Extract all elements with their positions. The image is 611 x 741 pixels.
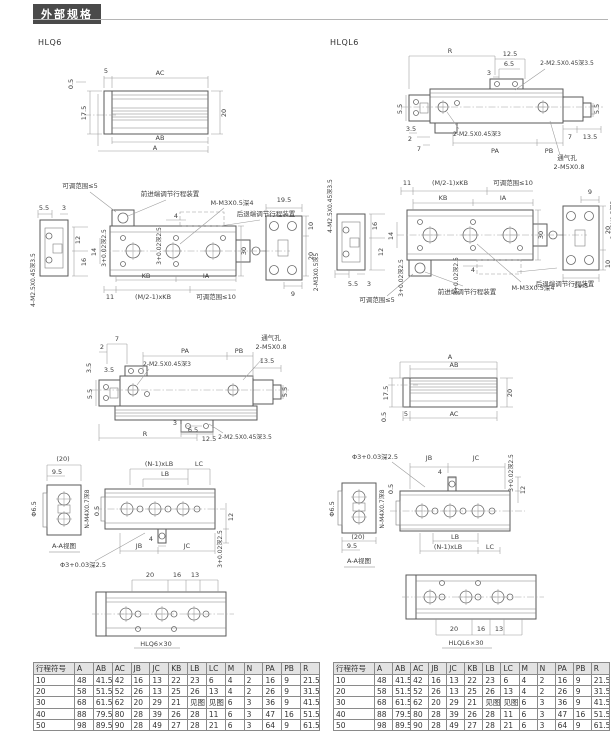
table-cell: 41.5 <box>393 675 411 686</box>
dim-5_5: 5.5 <box>39 204 49 212</box>
dim-6_5: 6.5 <box>504 60 514 68</box>
table-cell: 41.5 <box>93 675 112 686</box>
table-cell: 42 <box>112 675 131 686</box>
dim-ac: AC <box>450 410 459 418</box>
table-cell: 23 <box>483 675 501 686</box>
hlq6-detail-view: 20 16 13 HLQ6×30 <box>88 568 238 656</box>
table-cell: 3 <box>537 709 555 720</box>
table-cell: 16 <box>282 709 301 720</box>
column-header: AB <box>393 663 411 675</box>
table-cell: 21 <box>465 697 483 709</box>
model-label-hlql6: HLQL6 <box>330 38 359 47</box>
table-cell: 20 <box>34 686 75 697</box>
table-cell: 3 <box>537 720 555 731</box>
table-cell: 21 <box>501 720 519 731</box>
table-cell: 79.5 <box>393 709 411 720</box>
table-cell: 9 <box>282 686 301 697</box>
dim-12: 12 <box>227 513 235 521</box>
table-cell: 89.5 <box>93 720 112 731</box>
table-cell: 26 <box>465 709 483 720</box>
dim-3: 3 <box>62 204 66 212</box>
table-cell: 13 <box>447 675 465 686</box>
label-2-m5: 2-M5X0.8 <box>553 163 584 171</box>
dim-12: 12 <box>519 486 527 494</box>
table-cell: 61.5 <box>393 697 411 709</box>
table-cell: 80 <box>112 709 131 720</box>
column-header: M <box>225 663 244 675</box>
table-cell: 58 <box>375 686 393 697</box>
table-cell: 28 <box>483 720 501 731</box>
label-screw-4-m2_5: 4-M2.5X0.45深3.5 <box>29 253 37 307</box>
column-header: PA <box>555 663 573 675</box>
header-row: 行程符号AABACJBJCKBLBLCMNPAPBR <box>334 663 610 675</box>
hlq6-dimension-table: 行程符号AABACJBJCKBLBLCMNPAPBR104841.5421613… <box>33 662 320 731</box>
hlq6-side-view: AC 5 0.5 17.5 20 AB A <box>40 58 240 160</box>
dim-0_5: 0.5 <box>387 484 395 494</box>
column-header: N <box>537 663 555 675</box>
dim-dia-3: Φ3+0.03深2.5 <box>352 452 398 461</box>
dim-5: 5 <box>104 67 108 75</box>
dim-17_5: 17.5 <box>80 106 88 120</box>
header-divider <box>33 19 608 20</box>
table-cell: 16 <box>573 709 591 720</box>
dim-n-1xlb: (N-1)xLB <box>145 460 173 468</box>
table-cell: 26 <box>131 686 150 697</box>
dim-n-1xlb: (N-1)xLB <box>434 543 462 551</box>
table-cell: 20 <box>334 686 375 697</box>
table-row: 306861.562202921见图见图6336941.5 <box>34 697 320 709</box>
table-cell: 98 <box>375 720 393 731</box>
table-cell: 2 <box>244 686 263 697</box>
dim-jb: JB <box>425 454 432 462</box>
dim-16: 16 <box>80 258 88 266</box>
dim-10: 10 <box>604 260 611 268</box>
dim-2: 2 <box>408 135 412 143</box>
table-cell: 41.5 <box>301 697 320 709</box>
dim-pa: PA <box>491 147 500 155</box>
table-cell: 58 <box>75 686 94 697</box>
table-cell: 3 <box>537 697 555 709</box>
dim-13: 13 <box>191 571 199 579</box>
dim-3: 3 <box>487 69 491 77</box>
table-cell: 68 <box>375 697 393 709</box>
dim-3: 3 <box>367 280 371 288</box>
table-cell: 88 <box>75 709 94 720</box>
table-cell: 26 <box>188 686 207 697</box>
table-cell: 21 <box>206 720 225 731</box>
dim-0_5: 0.5 <box>93 506 101 516</box>
label-n-m4: N-M4X0.7深8 <box>83 489 91 528</box>
hlq6-front-view: 7 2 PA PB 通气孔 2-M5X0.8 2-M2.5X0.45深3 13.… <box>85 328 290 446</box>
hlq6-detail-view-art <box>92 580 234 648</box>
dim-4: 4 <box>174 212 178 220</box>
dim-5_5-left: 5.5 <box>396 104 404 114</box>
table-cell: 9 <box>573 720 591 731</box>
table-cell: 51.5 <box>591 709 609 720</box>
table-cell: 2 <box>537 675 555 686</box>
column-header: LC <box>206 663 225 675</box>
column-header: JC <box>447 663 465 675</box>
table-cell: 31.5 <box>301 686 320 697</box>
table-cell: 28 <box>429 709 447 720</box>
table-cell: 11 <box>501 709 519 720</box>
dim-ab: AB <box>450 361 459 369</box>
page-title: 外部规格 <box>33 4 101 24</box>
table-cell: 39 <box>150 709 169 720</box>
table-cell: 27 <box>169 720 188 731</box>
table-cell: 3 <box>244 720 263 731</box>
dim-9_5: 9.5 <box>347 542 357 550</box>
dim-tolerance: 3+0.02深2.5 <box>216 530 224 568</box>
column-header: AB <box>93 663 112 675</box>
table-cell: 13 <box>501 686 519 697</box>
label-adjust-range-10: 可调范围≤10 <box>196 292 236 301</box>
table-cell: 6 <box>501 675 519 686</box>
table-cell: 61.5 <box>301 720 320 731</box>
table-cell: 62 <box>112 697 131 709</box>
dim-3_5-b: 3.5 <box>104 366 114 374</box>
table-cell: 16 <box>263 675 282 686</box>
table-cell: 9 <box>282 697 301 709</box>
column-header: A <box>75 663 94 675</box>
table-cell: 6 <box>519 709 537 720</box>
hlql6-side-view: A AB 17.5 20 0.5 5 AC <box>370 345 610 449</box>
label-adjust-range-10: 可调范围≤10 <box>493 178 533 187</box>
dim-3_5: 3.5 <box>406 125 416 133</box>
dim-20: 20 <box>220 109 228 117</box>
dim-jb: JB <box>135 542 142 550</box>
table-cell: 41.5 <box>591 697 609 709</box>
table-cell: 62 <box>411 697 429 709</box>
column-header: KB <box>169 663 188 675</box>
hlq6-side-view-art <box>76 76 223 153</box>
dim-m2-1xkb: (M/2-1)xKB <box>432 179 468 187</box>
table-cell: 6 <box>519 720 537 731</box>
table-cell: 42 <box>411 675 429 686</box>
table-cell: 50 <box>34 720 75 731</box>
table-row: 306861.562202921见图见图6336941.5 <box>334 697 610 709</box>
dim-14: 14 <box>90 248 98 256</box>
table-cell: 64 <box>263 720 282 731</box>
dim-kb: KB <box>142 272 151 280</box>
table-cell: 90 <box>411 720 429 731</box>
dim-ia: IA <box>500 194 507 202</box>
dim-16: 16 <box>371 222 379 230</box>
table-cell: 64 <box>555 720 573 731</box>
table-cell: 40 <box>34 709 75 720</box>
dim-12: 12 <box>74 236 82 244</box>
dim-pb: PB <box>235 347 243 355</box>
table-cell: 28 <box>188 709 207 720</box>
column-header: AC <box>411 663 429 675</box>
dim-a: A <box>448 353 453 361</box>
table-cell: 9 <box>573 675 591 686</box>
table-cell: 27 <box>465 720 483 731</box>
table-cell: 61.5 <box>93 697 112 709</box>
table-row: 205851.55226132526134226931.5 <box>34 686 320 697</box>
table-row: 205851.55226132526134226931.5 <box>334 686 610 697</box>
hlq6-bottom-view: (20) 9.5 Φ6.5 N-M4X0.7深8 A-A视图 0.5 (N-1)… <box>25 447 260 576</box>
column-header: PB <box>282 663 301 675</box>
table-row: 408879.580283926281163471651.5 <box>334 709 610 720</box>
table-cell: 49 <box>150 720 169 731</box>
dim-m2-1xkb: (M/2-1)xKB <box>135 293 171 301</box>
table-cell: 10 <box>334 675 375 686</box>
dim-5_5-right: 5.5 <box>281 387 289 397</box>
dim-20-paren: (20) <box>351 533 364 541</box>
label-aa-view: A-A视图 <box>52 541 76 550</box>
table-cell: 31.5 <box>591 686 609 697</box>
dim-11: 11 <box>403 179 411 187</box>
label-screw-4-m2_5: 4-M2.5X0.45深3.5 <box>326 179 334 233</box>
dim-ac: AC <box>156 69 165 77</box>
table-cell: 36 <box>555 697 573 709</box>
table-cell: 26 <box>169 709 188 720</box>
table-cell: 30 <box>334 697 375 709</box>
label-aa-view: A-A视图 <box>347 556 371 565</box>
table-cell: 9 <box>282 675 301 686</box>
hlql6-front-view: R 12.5 6.5 3 2-M2.5X0.45深3.5 5.5 3.5 2 7… <box>395 45 607 177</box>
table-cell: 61.5 <box>591 720 609 731</box>
label-2-m2_5-deep3_5: 2-M2.5X0.45深3.5 <box>540 59 594 67</box>
column-header: LB <box>188 663 207 675</box>
table-cell: 90 <box>112 720 131 731</box>
dim-lb: LB <box>161 470 169 478</box>
table-cell: 25 <box>169 686 188 697</box>
table-cell: 30 <box>34 697 75 709</box>
table-cell: 3 <box>244 697 263 709</box>
table-cell: 40 <box>334 709 375 720</box>
column-header: A <box>375 663 393 675</box>
table-cell: 见图 <box>206 697 225 709</box>
label-n-m4: N-M4X0.7深8 <box>378 489 386 528</box>
dim-tolerance-b: 3+0.02深2.5 <box>155 227 163 265</box>
dim-r: R <box>143 430 148 438</box>
dim-r: R <box>448 47 453 55</box>
table-cell: 6 <box>225 720 244 731</box>
label-adjust-range-5: 可调范围≤5 <box>62 181 98 190</box>
table-cell: 26 <box>483 686 501 697</box>
table-cell: 48 <box>375 675 393 686</box>
dim-3_5-a: 3.5 <box>85 363 93 373</box>
table-cell: 20 <box>131 697 150 709</box>
table-cell: 13 <box>150 686 169 697</box>
hlql6-front-view-art <box>401 56 603 155</box>
label-screw-2-m3: 2-M3X0.5深5 <box>312 253 320 292</box>
column-header: 行程符号 <box>34 663 75 675</box>
dim-kb: KB <box>439 194 448 202</box>
column-header: PB <box>573 663 591 675</box>
table-row: 408879.580283926281163471651.5 <box>34 709 320 720</box>
dim-5_5-right: 5.5 <box>593 104 601 114</box>
dim-19_5: 19.5 <box>574 282 588 290</box>
table-cell: 16 <box>555 675 573 686</box>
table-cell: 39 <box>447 709 465 720</box>
column-header: R <box>591 663 609 675</box>
table-cell: 51.5 <box>301 709 320 720</box>
table-cell: 13 <box>150 675 169 686</box>
dim-12_5: 12.5 <box>202 435 216 443</box>
dim-0_5: 0.5 <box>380 412 388 422</box>
table-row: 104841.5421613222364216921.5 <box>334 675 610 686</box>
table-cell: 29 <box>150 697 169 709</box>
table-cell: 16 <box>131 675 150 686</box>
hlql6-bottom-view: Φ3+0.03深2.5 JB JC 4 3+0.02深2.5 0.5 12 LB… <box>330 447 611 576</box>
dim-3-bottom: 3 <box>173 419 177 427</box>
spec-page: 外部规格 HLQ6 HLQL6 AC 5 0.5 17.5 20 AB A <box>0 0 611 741</box>
dim-20: 20 <box>604 226 611 234</box>
label-2-m2_5-deep3_5: 2-M2.5X0.45深3.5 <box>218 433 272 441</box>
table-row: 509889.59028492728216364961.5 <box>334 720 610 731</box>
detail-caption: HLQL6×30 <box>448 639 483 647</box>
label-vent-hole: 通气孔 <box>261 333 281 342</box>
dim-20-paren: (20) <box>56 455 69 463</box>
dim-30: 30 <box>240 247 248 255</box>
table-cell: 23 <box>188 675 207 686</box>
label-2-m2_5-deep3: 2-M2.5X0.45深3 <box>453 130 501 138</box>
table-cell: 89.5 <box>393 720 411 731</box>
table-cell: 80 <box>411 709 429 720</box>
table-cell: 47 <box>263 709 282 720</box>
dim-10: 10 <box>307 222 315 230</box>
dim-7: 7 <box>115 335 119 343</box>
dim-5: 5 <box>404 410 408 418</box>
dim-9_5: 9.5 <box>52 468 62 476</box>
table-cell: 28 <box>131 709 150 720</box>
table-cell: 16 <box>429 675 447 686</box>
column-header: PA <box>263 663 282 675</box>
table-cell: 见图 <box>501 697 519 709</box>
dim-13_5: 13.5 <box>260 357 274 365</box>
table-cell: 11 <box>206 709 225 720</box>
dim-tolerance-a: 3+0.02深2.5 <box>100 229 108 267</box>
dim-20: 20 <box>450 625 458 633</box>
table-cell: 48 <box>75 675 94 686</box>
table-cell: 51.5 <box>93 686 112 697</box>
header-row: 行程符号AABACJBJCKBLBLCMNPAPBR <box>34 663 320 675</box>
hlql6-detail-view: 20 16 13 HLQL6×30 <box>398 565 548 659</box>
hlql6-bottom-view-art <box>338 462 525 567</box>
dim-16: 16 <box>173 571 181 579</box>
table-cell: 26 <box>429 686 447 697</box>
table-cell: 28 <box>131 720 150 731</box>
label-thread-m3: M-M3X0.5深4 <box>210 198 253 207</box>
dim-4: 4 <box>149 535 153 543</box>
hlq6-top-view: 可调范围≤5 前进端调节行程装置 M-M3X0.5深4 后退端调节行程装置 5.… <box>28 172 320 314</box>
label-2-m2_5-deep3: 2-M2.5X0.45深3 <box>143 360 191 368</box>
table-cell: 50 <box>334 720 375 731</box>
table-cell: 68 <box>75 697 94 709</box>
dim-4: 4 <box>471 266 475 274</box>
label-rear-stroke-adjuster: 后退端调节行程装置 <box>237 209 296 218</box>
table-cell: 2 <box>537 686 555 697</box>
table-cell: 2 <box>244 675 263 686</box>
hlql6-dimension-table: 行程符号AABACJBJCKBLBLCMNPAPBR104841.5421613… <box>333 662 610 731</box>
dim-dia-6_5: Φ6.5 <box>328 501 336 516</box>
column-header: N <box>244 663 263 675</box>
table-cell: 4 <box>225 686 244 697</box>
dim-tolerance: 3+0.02深2.5 <box>507 454 515 492</box>
table-cell: 13 <box>447 686 465 697</box>
dim-lc: LC <box>486 543 495 551</box>
dim-7-left: 7 <box>417 145 421 153</box>
table-cell: 36 <box>263 697 282 709</box>
table-cell: 见图 <box>188 697 207 709</box>
table-cell: 3 <box>244 709 263 720</box>
dim-19_5: 19.5 <box>277 196 291 204</box>
column-header: JB <box>131 663 150 675</box>
table-row: 104841.5421613222364216921.5 <box>34 675 320 686</box>
dim-jc: JC <box>472 454 480 462</box>
table-cell: 79.5 <box>93 709 112 720</box>
label-vent-hole: 通气孔 <box>557 153 577 162</box>
dim-9: 9 <box>291 290 295 298</box>
table-cell: 47 <box>555 709 573 720</box>
dim-jc: JC <box>183 542 191 550</box>
dim-12: 12 <box>377 248 385 256</box>
dim-a: A <box>153 144 158 152</box>
column-header: KB <box>465 663 483 675</box>
label-adjust-range-5: 可调范围≤5 <box>359 295 395 304</box>
dim-6_5: 6.5 <box>188 426 198 434</box>
dim-0_5: 0.5 <box>67 79 75 89</box>
dim-7-right: 7 <box>568 133 572 141</box>
table-row: 509889.59028492728216364961.5 <box>34 720 320 731</box>
table-cell: 4 <box>225 675 244 686</box>
table-cell: 6 <box>519 697 537 709</box>
dim-14: 14 <box>387 232 395 240</box>
label-front-stroke-adjuster: 前进端调节行程装置 <box>141 189 200 198</box>
table-cell: 25 <box>465 686 483 697</box>
table-cell: 21.5 <box>591 675 609 686</box>
dim-ab: AB <box>156 134 165 142</box>
table-cell: 52 <box>411 686 429 697</box>
table-cell: 13 <box>206 686 225 697</box>
dim-9: 9 <box>588 188 592 196</box>
dim-13: 13 <box>495 625 503 633</box>
table-cell: 9 <box>573 686 591 697</box>
column-header: JC <box>150 663 169 675</box>
dim-20: 20 <box>506 389 514 397</box>
table-cell: 4 <box>519 675 537 686</box>
dim-30: 30 <box>537 231 545 239</box>
table-cell: 6 <box>225 697 244 709</box>
label-2-m5: 2-M5X0.8 <box>255 343 286 351</box>
table-cell: 9 <box>282 720 301 731</box>
table-cell: 10 <box>34 675 75 686</box>
table-cell: 52 <box>112 686 131 697</box>
table-cell: 51.5 <box>393 686 411 697</box>
dim-11: 11 <box>106 293 114 301</box>
dim-tolerance-a: 3+0.02深2.5 <box>397 259 405 297</box>
hlql6-top-view: 11 (M/2-1)xKB 可调范围≤10 KB IA 16 12 4-M2.5… <box>325 174 611 318</box>
table-cell: 98 <box>75 720 94 731</box>
table-cell: 28 <box>483 709 501 720</box>
dim-pb: PB <box>545 147 553 155</box>
table-cell: 49 <box>447 720 465 731</box>
table-cell: 6 <box>225 709 244 720</box>
column-header: R <box>301 663 320 675</box>
table-cell: 20 <box>429 697 447 709</box>
table-cell: 9 <box>573 697 591 709</box>
dim-17_5: 17.5 <box>382 386 390 400</box>
table-cell: 26 <box>555 686 573 697</box>
table-cell: 21 <box>169 697 188 709</box>
dim-2: 2 <box>100 343 104 351</box>
model-label-hlq6: HLQ6 <box>38 38 62 47</box>
table-cell: 22 <box>465 675 483 686</box>
table-cell: 6 <box>206 675 225 686</box>
